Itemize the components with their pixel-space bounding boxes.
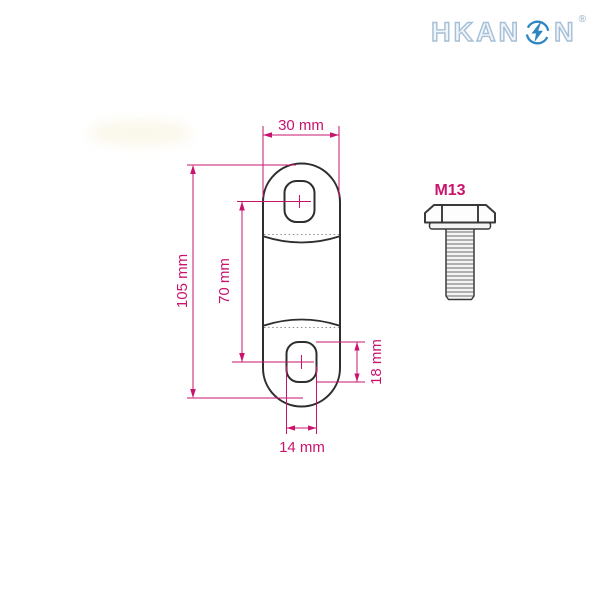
- arrow-up-icon: [190, 165, 196, 174]
- dimension-label: 30 mm: [278, 117, 324, 134]
- arrow-down-icon: [239, 353, 245, 362]
- product-dimension-image: HKAN N ®: [0, 0, 600, 600]
- arrow-up-icon: [354, 342, 359, 351]
- arrow-right-icon: [330, 132, 339, 138]
- arrow-up-icon: [239, 202, 245, 211]
- arrow-down-icon: [190, 389, 196, 398]
- arrow-left-icon: [263, 132, 272, 138]
- dimension-label: 70 mm: [216, 258, 233, 304]
- arrow-down-icon: [354, 374, 359, 383]
- bolt-threads: [447, 231, 474, 297]
- hex-bolt: M13: [425, 182, 495, 300]
- dimension-label: 105 mm: [174, 254, 191, 308]
- bolt-size-label: M13: [434, 182, 465, 199]
- bracket-plate: [263, 164, 340, 407]
- arrow-right-icon: [308, 425, 317, 430]
- arrow-left-icon: [287, 425, 296, 430]
- bolt-head: [425, 205, 495, 223]
- dimension-label: 14 mm: [279, 439, 325, 456]
- technical-drawing: 30 mm 105 mm 70 mm: [0, 0, 600, 600]
- dimension-label: 18 mm: [368, 339, 385, 385]
